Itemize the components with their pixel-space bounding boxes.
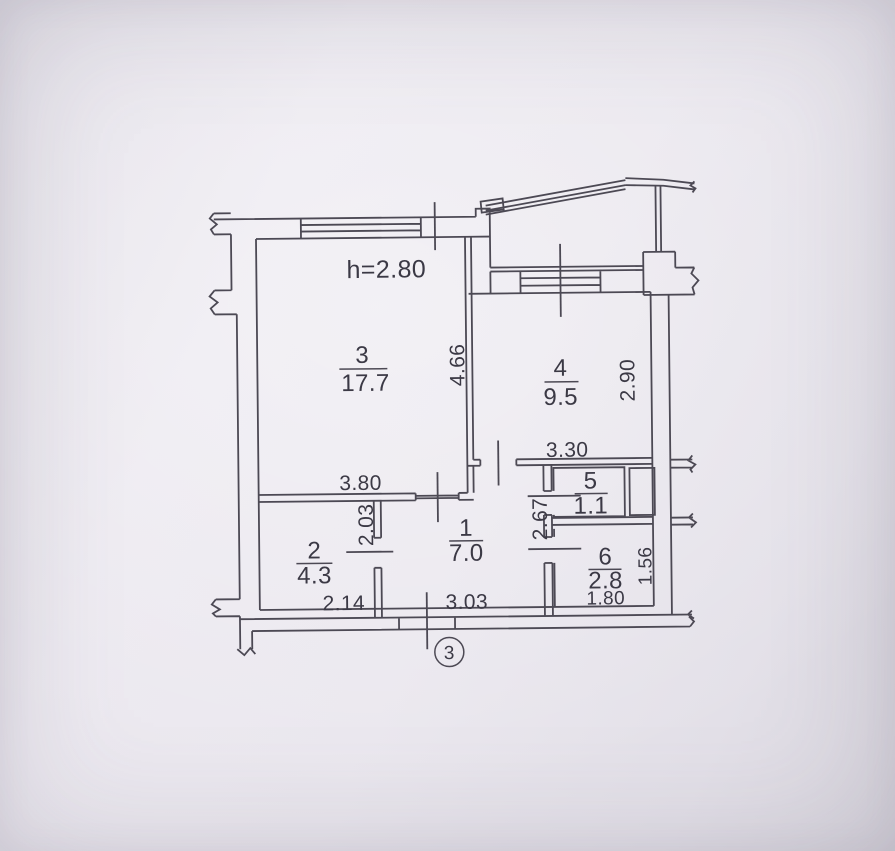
- right-stub-upper: [670, 455, 695, 472]
- room5-number: 5: [584, 467, 598, 494]
- room6-door-tick: [528, 549, 581, 550]
- room4-number: 4: [553, 355, 567, 382]
- dim-room4-depth: 2.90: [616, 359, 639, 402]
- dim-room6-depth: 1.56: [635, 547, 656, 586]
- floor-plan-drawing: h=2.80 3 17.7 4 9.5 5 1.1: [0, 0, 895, 851]
- room3-area: 17.7: [341, 370, 390, 398]
- dim-hall-width: 3.03: [445, 591, 488, 614]
- room3-window: [301, 217, 421, 238]
- floorplan-photo: h=2.80 3 17.7 4 9.5 5 1.1: [0, 0, 895, 851]
- ceiling-height-label: h=2.80: [346, 255, 426, 284]
- room6-box: [554, 529, 555, 607]
- room2-area: 4.3: [297, 562, 332, 589]
- room4-window-axis-tick: [560, 244, 561, 317]
- ceiling-height-text: h=2.80: [346, 255, 426, 284]
- balcony: [480, 177, 698, 296]
- dim-room2-width: 2.14: [322, 592, 365, 615]
- room3-number: 3: [355, 342, 369, 369]
- top-left-stub: [210, 213, 231, 234]
- room2-label: 2 4.3: [296, 537, 333, 589]
- room-labels: h=2.80 3 17.7 4 9.5 5 1.1: [293, 253, 623, 597]
- room1-label: 1 7.0: [449, 515, 484, 567]
- balcony-support-block: [643, 251, 698, 295]
- room1-number: 1: [459, 515, 473, 542]
- dim-room2-depth: 2.03: [355, 504, 378, 547]
- room1-area: 7.0: [449, 540, 484, 567]
- room3-label: 3 17.7: [339, 342, 390, 398]
- room3-door-tick: [437, 472, 438, 522]
- dim-room3-depth: 4.66: [446, 344, 469, 387]
- room2-number: 2: [307, 537, 321, 564]
- room4-label: 4 9.5: [543, 355, 579, 411]
- entrance-axis-line: [427, 592, 428, 649]
- room6-label: 6 2.8: [588, 543, 623, 594]
- balcony-post: [655, 186, 661, 252]
- room5-label: 5 1.1: [573, 467, 608, 519]
- duct-shaft: [629, 468, 654, 515]
- dim-room6-width: 1.80: [586, 588, 625, 609]
- dim-hall-depth: 2.67: [529, 498, 552, 541]
- top-window-axis-tick: [435, 202, 436, 250]
- room4-window-wall: [468, 270, 650, 294]
- dim-room4-width: 3.30: [546, 439, 589, 462]
- section-axis-marker: 3: [435, 637, 464, 666]
- room4-area: 9.5: [543, 384, 578, 411]
- room5-area: 1.1: [573, 492, 608, 519]
- dim-room3-width: 3.80: [339, 472, 382, 495]
- balcony-floor: [490, 211, 644, 268]
- balcony-railing: [480, 180, 625, 215]
- axis-number: 3: [444, 643, 455, 664]
- left-wall: [208, 234, 260, 655]
- right-stub-middle: [671, 513, 696, 527]
